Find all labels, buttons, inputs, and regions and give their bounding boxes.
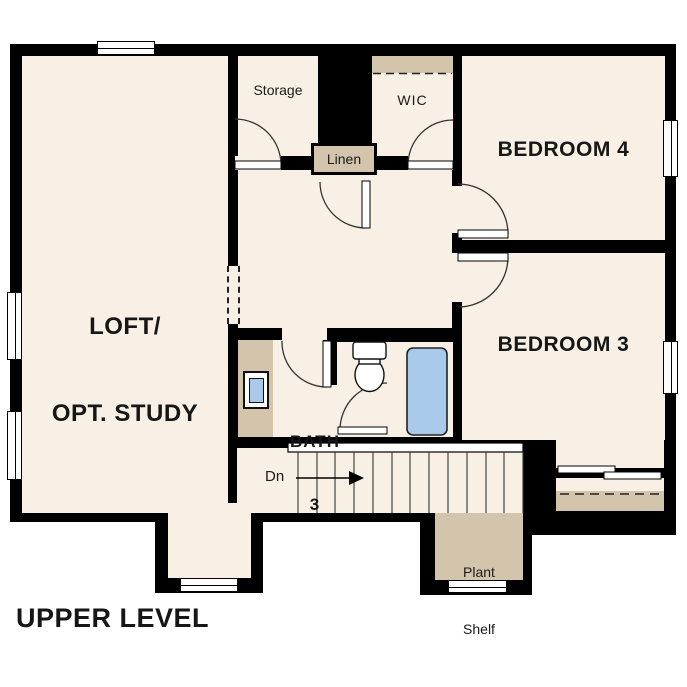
bath-label: BATH 3	[273, 389, 357, 557]
bedroom3-lower-floor	[556, 440, 664, 468]
bath-label-line1: BATH	[273, 431, 357, 452]
linen-label: Linen	[327, 151, 361, 167]
window-mullion	[671, 121, 672, 176]
bedroom3-label: BEDROOM 3	[462, 333, 665, 357]
wic-door-opening	[408, 156, 453, 170]
window-mullion	[15, 412, 16, 479]
plan-title: UPPER LEVEL	[16, 603, 209, 634]
bath-door-opening	[282, 328, 327, 340]
window-top	[97, 41, 155, 55]
loft-label-line2: OPT. STUDY	[25, 399, 225, 428]
room-storage-floor	[238, 56, 318, 156]
window-mullion	[671, 342, 672, 393]
bedroom3-door-opening	[452, 253, 462, 302]
storage-label: Storage	[238, 82, 318, 98]
bath-label-line2: 3	[273, 494, 357, 515]
room-bumpout-floor	[168, 503, 251, 578]
window-bedroom3-right	[663, 341, 678, 394]
window-mullion	[98, 48, 154, 49]
loft-optional-opening	[227, 266, 240, 324]
window-loft-left-2	[7, 411, 22, 480]
plant-shelf-label: Plant Shelf	[435, 525, 523, 677]
loft-label-line1: LOFT/	[25, 312, 225, 341]
hallway-floor	[238, 170, 452, 328]
window-loft-left-1	[7, 292, 22, 360]
bedroom4-label: BEDROOM 4	[462, 138, 665, 162]
wic-shelf	[372, 56, 453, 73]
window-bedroom4-right	[663, 120, 678, 177]
slider-strip-floor	[556, 478, 664, 491]
floor-plan: Linen LOFT/ OPT. STUDY Storage WIC BEDRO…	[0, 0, 687, 687]
window-mullion	[15, 293, 16, 359]
window-bumpout	[180, 578, 238, 592]
sink-basin	[249, 378, 264, 403]
wall-deck-bottom	[523, 511, 676, 535]
loft-label: LOFT/ OPT. STUDY	[25, 254, 225, 486]
plant-shelf-label-line1: Plant	[435, 563, 523, 582]
sink	[243, 371, 269, 409]
plant-shelf-label-line2: Shelf	[435, 620, 523, 639]
bedroom4-door-opening	[452, 186, 462, 233]
window-mullion	[181, 585, 237, 586]
wic-label: WIC	[372, 92, 453, 108]
stairs-down-label: Dn	[265, 468, 284, 485]
deck-roof	[556, 491, 664, 511]
storage-door-opening	[235, 156, 281, 170]
linen-closet: Linen	[311, 143, 377, 175]
